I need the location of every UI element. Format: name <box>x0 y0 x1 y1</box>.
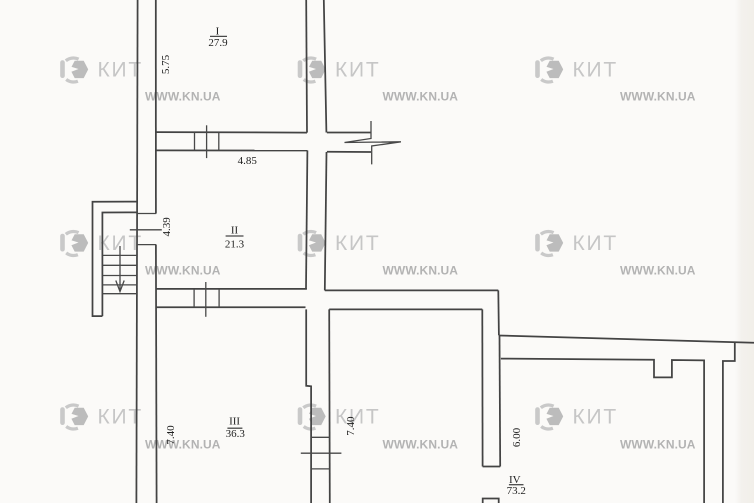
svg-text:I: I <box>216 26 220 38</box>
svg-text:7.40: 7.40 <box>165 425 177 445</box>
svg-text:21.3: 21.3 <box>225 238 245 250</box>
svg-text:5.75: 5.75 <box>160 54 172 74</box>
svg-text:II: II <box>231 225 239 237</box>
svg-text:27.9: 27.9 <box>208 37 228 49</box>
svg-text:6.00: 6.00 <box>511 427 523 447</box>
svg-text:4.39: 4.39 <box>161 217 173 237</box>
svg-text:7.40: 7.40 <box>345 416 357 436</box>
svg-text:36.3: 36.3 <box>226 428 246 440</box>
svg-text:4.85: 4.85 <box>238 155 258 167</box>
svg-text:III: III <box>229 416 240 428</box>
svg-text:73.2: 73.2 <box>507 485 526 497</box>
